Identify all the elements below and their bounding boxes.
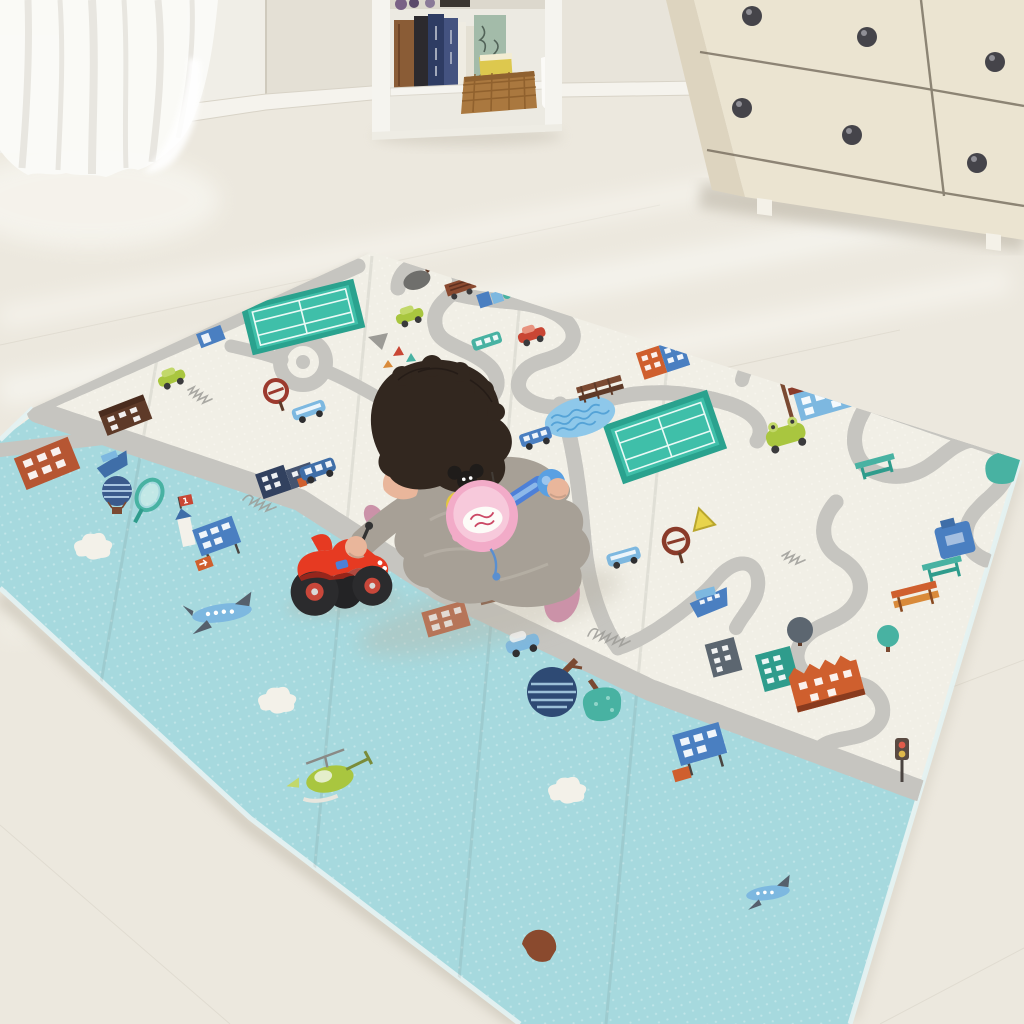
baby-right-hand	[345, 536, 367, 558]
photo-stage: 1	[0, 0, 1024, 1024]
bookshelf	[372, 0, 563, 146]
bookshelf-left-panel	[372, 0, 390, 136]
nursery-photo: 1	[0, 0, 1024, 1024]
bookshelf-right-panel	[545, 0, 562, 131]
